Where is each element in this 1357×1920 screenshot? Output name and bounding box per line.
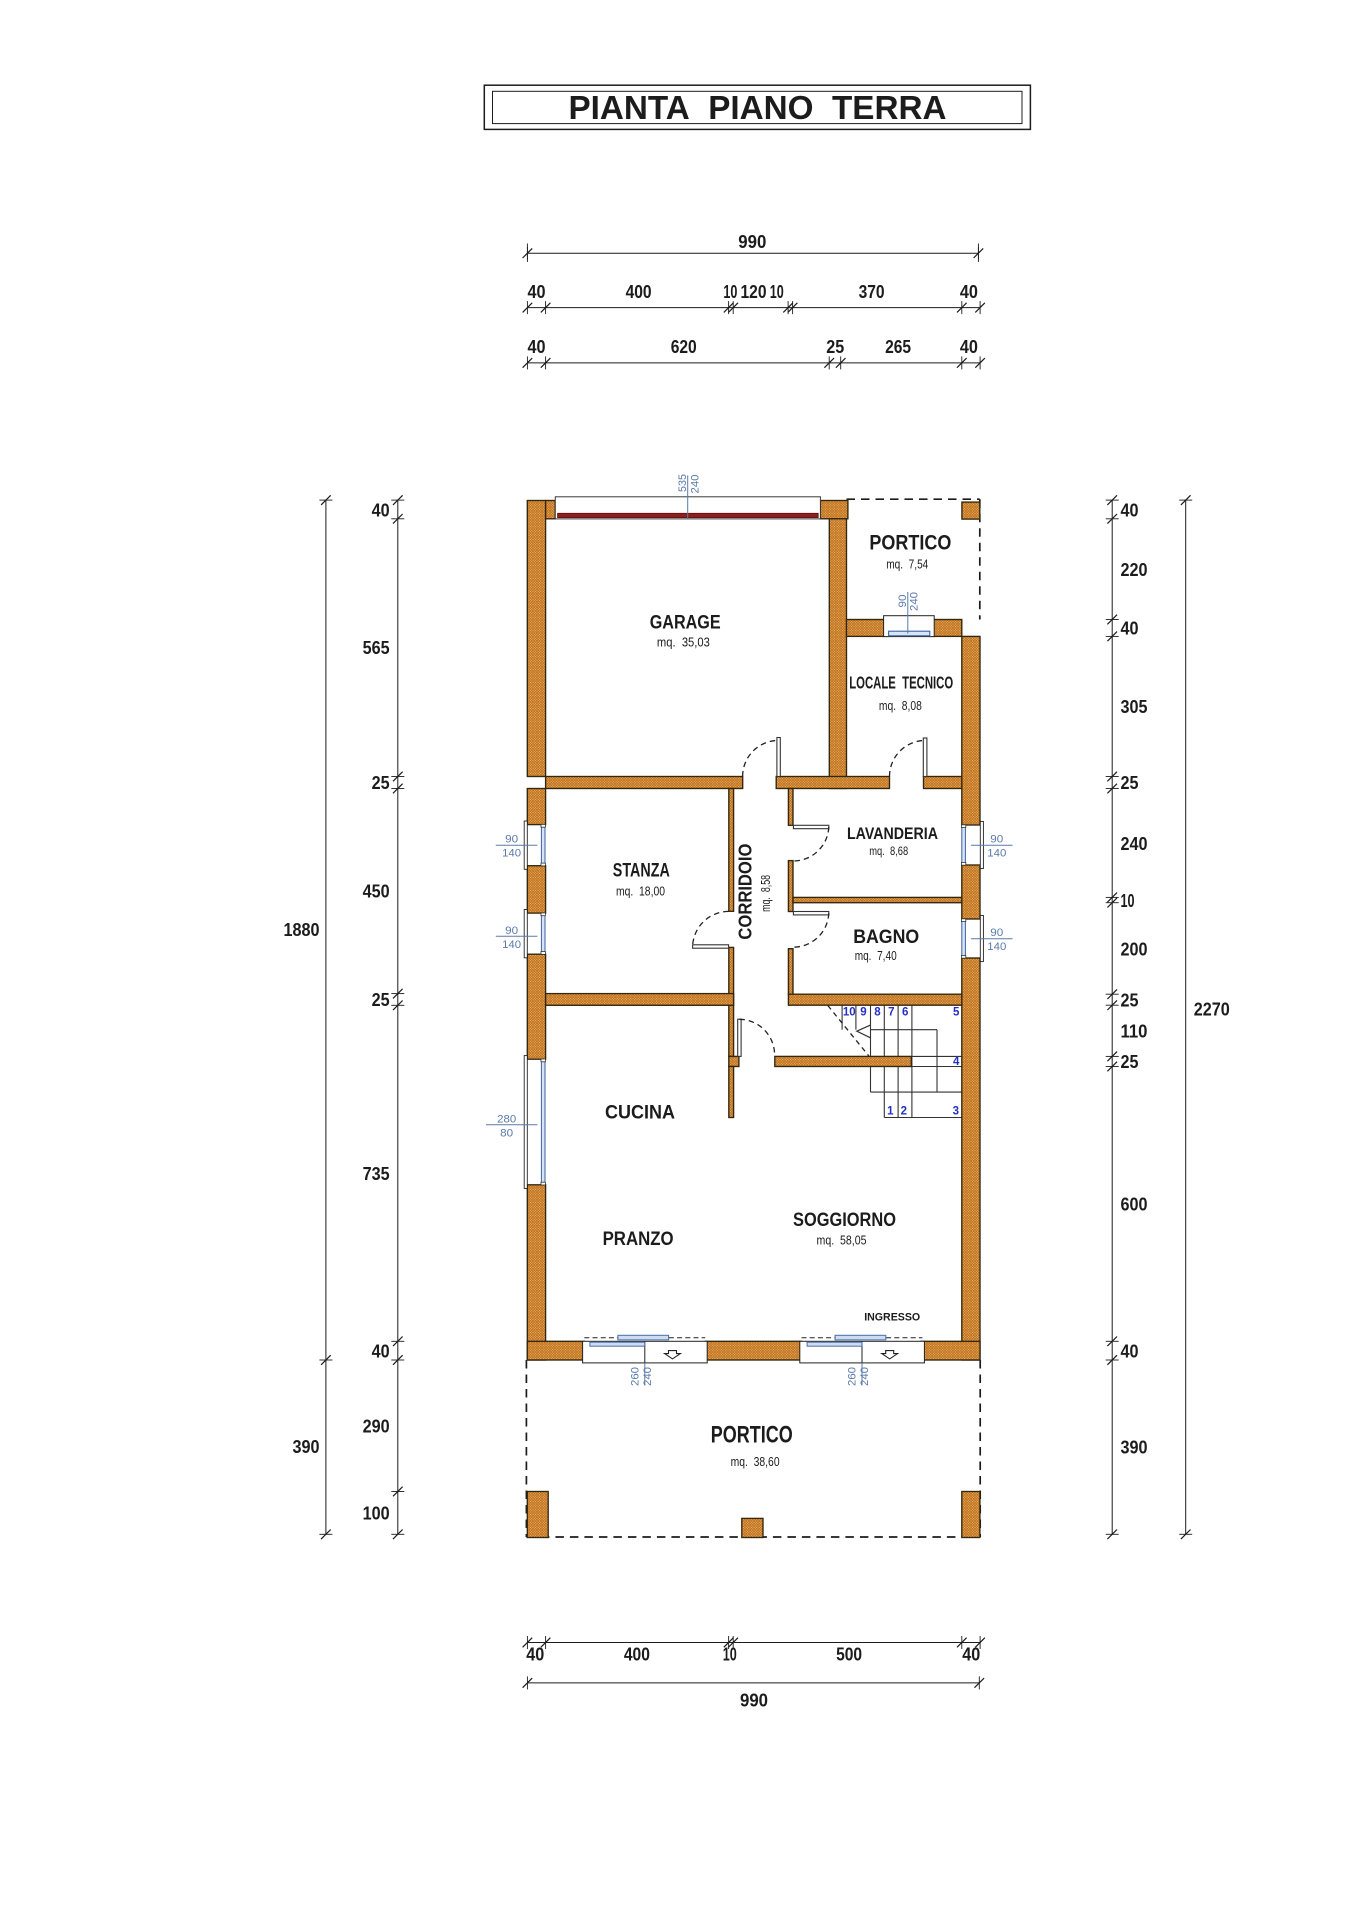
svg-text:620: 620 xyxy=(671,336,697,357)
svg-text:LAVANDERIA: LAVANDERIA xyxy=(847,825,938,843)
svg-text:8: 8 xyxy=(874,1006,881,1018)
svg-text:mq. 18,00: mq. 18,00 xyxy=(616,884,665,899)
svg-text:400: 400 xyxy=(626,281,652,302)
svg-text:2270: 2270 xyxy=(1194,999,1230,1020)
svg-text:PRANZO: PRANZO xyxy=(603,1229,674,1250)
svg-text:10: 10 xyxy=(843,1006,856,1018)
svg-text:40: 40 xyxy=(962,1644,980,1665)
svg-text:10: 10 xyxy=(1121,890,1135,911)
svg-text:90: 90 xyxy=(505,834,518,846)
svg-text:240: 240 xyxy=(690,475,702,494)
svg-text:990: 990 xyxy=(740,1690,768,1711)
svg-text:40: 40 xyxy=(528,281,546,302)
svg-text:mq. 58,05: mq. 58,05 xyxy=(817,1233,867,1248)
svg-text:40: 40 xyxy=(1121,618,1139,639)
svg-text:565: 565 xyxy=(363,637,390,658)
svg-text:100: 100 xyxy=(363,1503,390,1524)
svg-text:200: 200 xyxy=(1121,939,1148,960)
svg-text:9: 9 xyxy=(860,1006,866,1018)
svg-text:4: 4 xyxy=(953,1056,960,1068)
svg-text:40: 40 xyxy=(1121,499,1139,520)
svg-text:80: 80 xyxy=(500,1127,513,1139)
svg-text:STANZA: STANZA xyxy=(613,860,670,881)
svg-text:265: 265 xyxy=(885,336,911,357)
svg-text:90: 90 xyxy=(990,927,1003,939)
svg-text:40: 40 xyxy=(1121,1340,1139,1361)
svg-text:mq. 35,03: mq. 35,03 xyxy=(657,635,710,650)
svg-text:140: 140 xyxy=(502,939,521,951)
svg-text:mq. 8,58: mq. 8,58 xyxy=(759,875,773,912)
svg-text:600: 600 xyxy=(1121,1194,1148,1215)
svg-text:400: 400 xyxy=(624,1644,650,1665)
svg-text:10: 10 xyxy=(770,281,784,302)
svg-text:990: 990 xyxy=(738,231,766,252)
svg-text:305: 305 xyxy=(1121,696,1148,717)
svg-text:PORTICO: PORTICO xyxy=(711,1421,793,1448)
svg-text:mq. 38,60: mq. 38,60 xyxy=(731,1454,780,1469)
svg-text:7: 7 xyxy=(888,1006,894,1018)
svg-text:220: 220 xyxy=(1121,559,1148,580)
svg-text:140: 140 xyxy=(987,941,1006,953)
svg-text:40: 40 xyxy=(372,1340,390,1361)
svg-text:280: 280 xyxy=(497,1113,516,1125)
svg-text:390: 390 xyxy=(293,1436,320,1457)
svg-text:BAGNO: BAGNO xyxy=(853,927,919,948)
svg-text:40: 40 xyxy=(372,499,390,520)
svg-text:40: 40 xyxy=(526,1644,544,1665)
svg-text:90: 90 xyxy=(990,834,1003,846)
svg-text:370: 370 xyxy=(859,281,885,302)
svg-text:260: 260 xyxy=(630,1367,642,1386)
svg-text:40: 40 xyxy=(528,336,546,357)
svg-text:mq. 8,68: mq. 8,68 xyxy=(869,844,908,858)
svg-text:25: 25 xyxy=(372,989,390,1010)
svg-text:SOGGIORNO: SOGGIORNO xyxy=(793,1210,896,1231)
svg-text:25: 25 xyxy=(1121,990,1139,1011)
svg-text:2: 2 xyxy=(901,1105,907,1117)
svg-text:290: 290 xyxy=(363,1416,390,1437)
svg-text:CUCINA: CUCINA xyxy=(605,1102,675,1123)
svg-text:25: 25 xyxy=(1121,1051,1139,1072)
svg-text:40: 40 xyxy=(960,336,978,357)
svg-text:535: 535 xyxy=(677,474,689,492)
svg-text:10: 10 xyxy=(723,1644,737,1665)
svg-text:1880: 1880 xyxy=(284,919,320,940)
svg-text:LOCALE TECNICO: LOCALE TECNICO xyxy=(849,673,953,693)
svg-text:mq. 8,08: mq. 8,08 xyxy=(879,699,922,713)
svg-text:500: 500 xyxy=(836,1644,862,1665)
svg-text:40: 40 xyxy=(960,281,978,302)
svg-text:GARAGE: GARAGE xyxy=(650,612,721,633)
svg-text:260: 260 xyxy=(847,1367,859,1386)
svg-text:25: 25 xyxy=(826,336,844,357)
svg-text:25: 25 xyxy=(372,772,390,793)
svg-text:mq. 7,54: mq. 7,54 xyxy=(886,558,928,572)
svg-text:240: 240 xyxy=(642,1367,654,1386)
svg-text:5: 5 xyxy=(953,1006,960,1018)
svg-text:10: 10 xyxy=(723,281,737,302)
svg-text:450: 450 xyxy=(363,881,390,902)
svg-text:240: 240 xyxy=(909,592,921,611)
svg-text:735: 735 xyxy=(363,1163,390,1184)
svg-text:110: 110 xyxy=(1121,1021,1148,1042)
svg-text:240: 240 xyxy=(859,1367,871,1386)
svg-text:140: 140 xyxy=(987,848,1006,860)
svg-text:140: 140 xyxy=(502,848,521,860)
svg-text:120: 120 xyxy=(741,281,767,302)
svg-text:390: 390 xyxy=(1121,1437,1148,1458)
svg-text:3: 3 xyxy=(953,1105,959,1117)
svg-text:CORRIDOIO: CORRIDOIO xyxy=(735,844,756,940)
svg-text:PORTICO: PORTICO xyxy=(869,530,951,554)
svg-text:INGRESSO: INGRESSO xyxy=(864,1311,920,1323)
svg-text:6: 6 xyxy=(902,1006,908,1018)
svg-text:90: 90 xyxy=(897,595,909,608)
svg-text:mq. 7,40: mq. 7,40 xyxy=(855,948,897,963)
svg-text:PIANTA PIANO TERRA: PIANTA PIANO TERRA xyxy=(569,89,947,126)
svg-text:90: 90 xyxy=(505,925,518,937)
svg-text:240: 240 xyxy=(1121,833,1148,854)
svg-text:25: 25 xyxy=(1121,772,1139,793)
svg-text:1: 1 xyxy=(887,1105,894,1117)
